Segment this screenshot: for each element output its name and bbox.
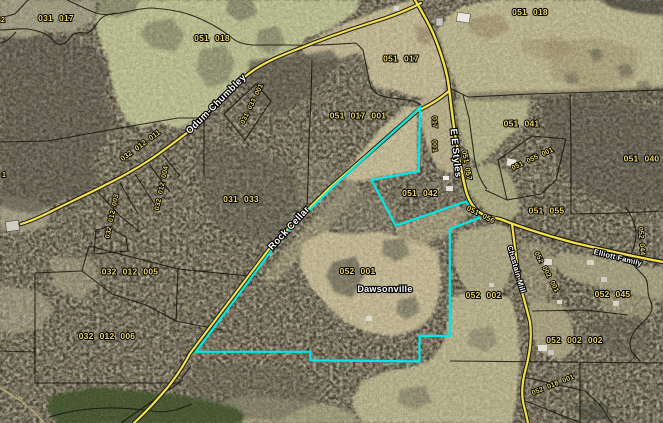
svg-text:Dawsonville: Dawsonville [357, 284, 412, 294]
svg-text:031 033: 031 033 [223, 194, 259, 204]
svg-text:052 001: 052 001 [340, 266, 376, 276]
svg-text:032 012 006: 032 012 006 [79, 331, 136, 341]
svg-text:017: 017 [430, 116, 437, 128]
svg-text:051 041: 051 041 [504, 119, 540, 129]
svg-text:032 012 005: 032 012 005 [102, 267, 159, 277]
svg-text:051 017: 051 017 [383, 54, 419, 64]
svg-text:051 042: 051 042 [402, 188, 438, 198]
svg-text:052 002 002: 052 002 002 [546, 335, 603, 345]
svg-text:052 002: 052 002 [466, 290, 502, 300]
svg-text:051 017 001: 051 017 001 [330, 111, 387, 121]
svg-text:1: 1 [2, 172, 6, 179]
svg-text:031 017: 031 017 [38, 13, 74, 23]
svg-text:052 045: 052 045 [595, 289, 631, 299]
svg-text:051 018: 051 018 [194, 33, 230, 43]
svg-text:32: 32 [0, 17, 5, 24]
svg-text:051 055: 051 055 [529, 206, 565, 216]
svg-text:051 018: 051 018 [512, 7, 548, 17]
svg-text:001: 001 [430, 140, 437, 152]
svg-text:051 040: 051 040 [624, 154, 660, 164]
